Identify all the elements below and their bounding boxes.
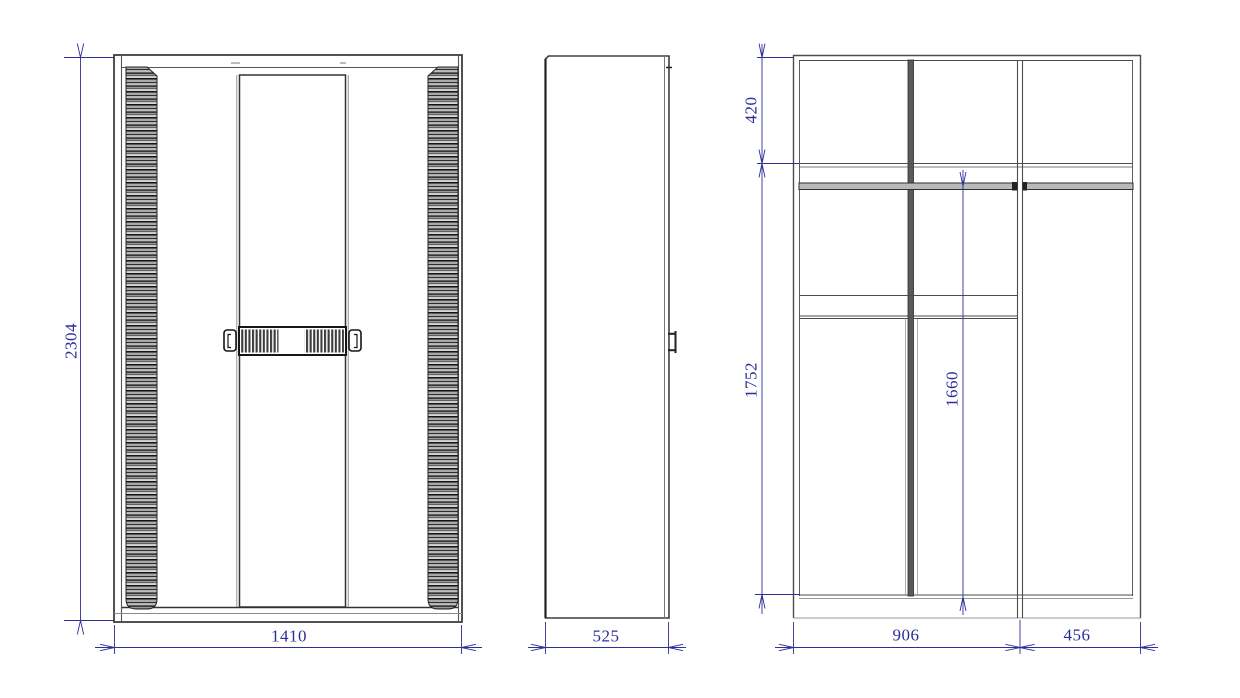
hanging-rail-right <box>1023 183 1133 190</box>
section-view <box>793 55 1141 618</box>
dim-top-section-height: 420 <box>743 97 760 124</box>
hinge-mark-left <box>231 62 240 64</box>
section-divider-right <box>1018 60 1023 618</box>
dim-left-section-width: 906 <box>893 627 920 644</box>
front-view <box>114 55 462 622</box>
section-dimension-lines <box>755 44 1158 655</box>
striped-panel-right <box>428 67 458 609</box>
dim-overall-height: 2304 <box>63 323 80 359</box>
dim-right-section-width: 456 <box>1064 627 1091 644</box>
handle-strip <box>224 327 361 355</box>
dim-interior-height: 1752 <box>743 362 760 398</box>
striped-panel-left <box>126 67 157 609</box>
hinge-mark-right <box>340 62 346 64</box>
wardrobe-linework <box>0 0 1240 698</box>
handle-strip-center <box>279 329 305 353</box>
section-divider-thick <box>908 60 914 596</box>
drawing-canvas: 2304 1410 525 420 1752 1660 906 456 <box>0 0 1240 698</box>
dim-hanging-height: 1660 <box>944 371 961 407</box>
side-outer-body <box>546 56 670 618</box>
dim-overall-width: 1410 <box>271 628 307 645</box>
dim-depth: 525 <box>593 628 620 645</box>
hanging-rail-left <box>799 183 1017 190</box>
side-view <box>546 56 676 618</box>
